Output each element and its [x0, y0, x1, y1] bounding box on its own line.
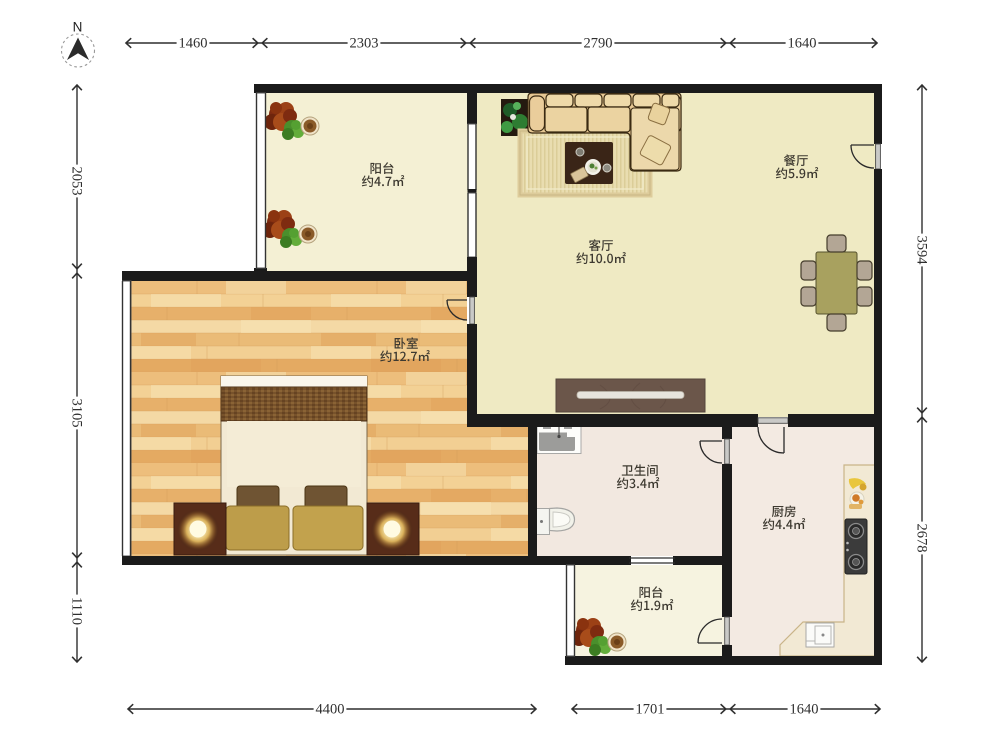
svg-text:2053: 2053 [69, 167, 85, 196]
svg-text:3105: 3105 [69, 399, 85, 428]
svg-text:4400: 4400 [316, 702, 345, 718]
svg-text:1701: 1701 [636, 702, 665, 718]
svg-text:1460: 1460 [179, 36, 208, 52]
svg-text:1640: 1640 [790, 702, 819, 718]
svg-text:2678: 2678 [914, 524, 930, 553]
svg-text:2303: 2303 [350, 36, 379, 52]
svg-text:1640: 1640 [788, 36, 817, 52]
svg-text:3594: 3594 [914, 236, 930, 266]
svg-text:N: N [73, 20, 83, 35]
svg-text:1110: 1110 [69, 597, 85, 625]
svg-text:2790: 2790 [584, 36, 613, 52]
